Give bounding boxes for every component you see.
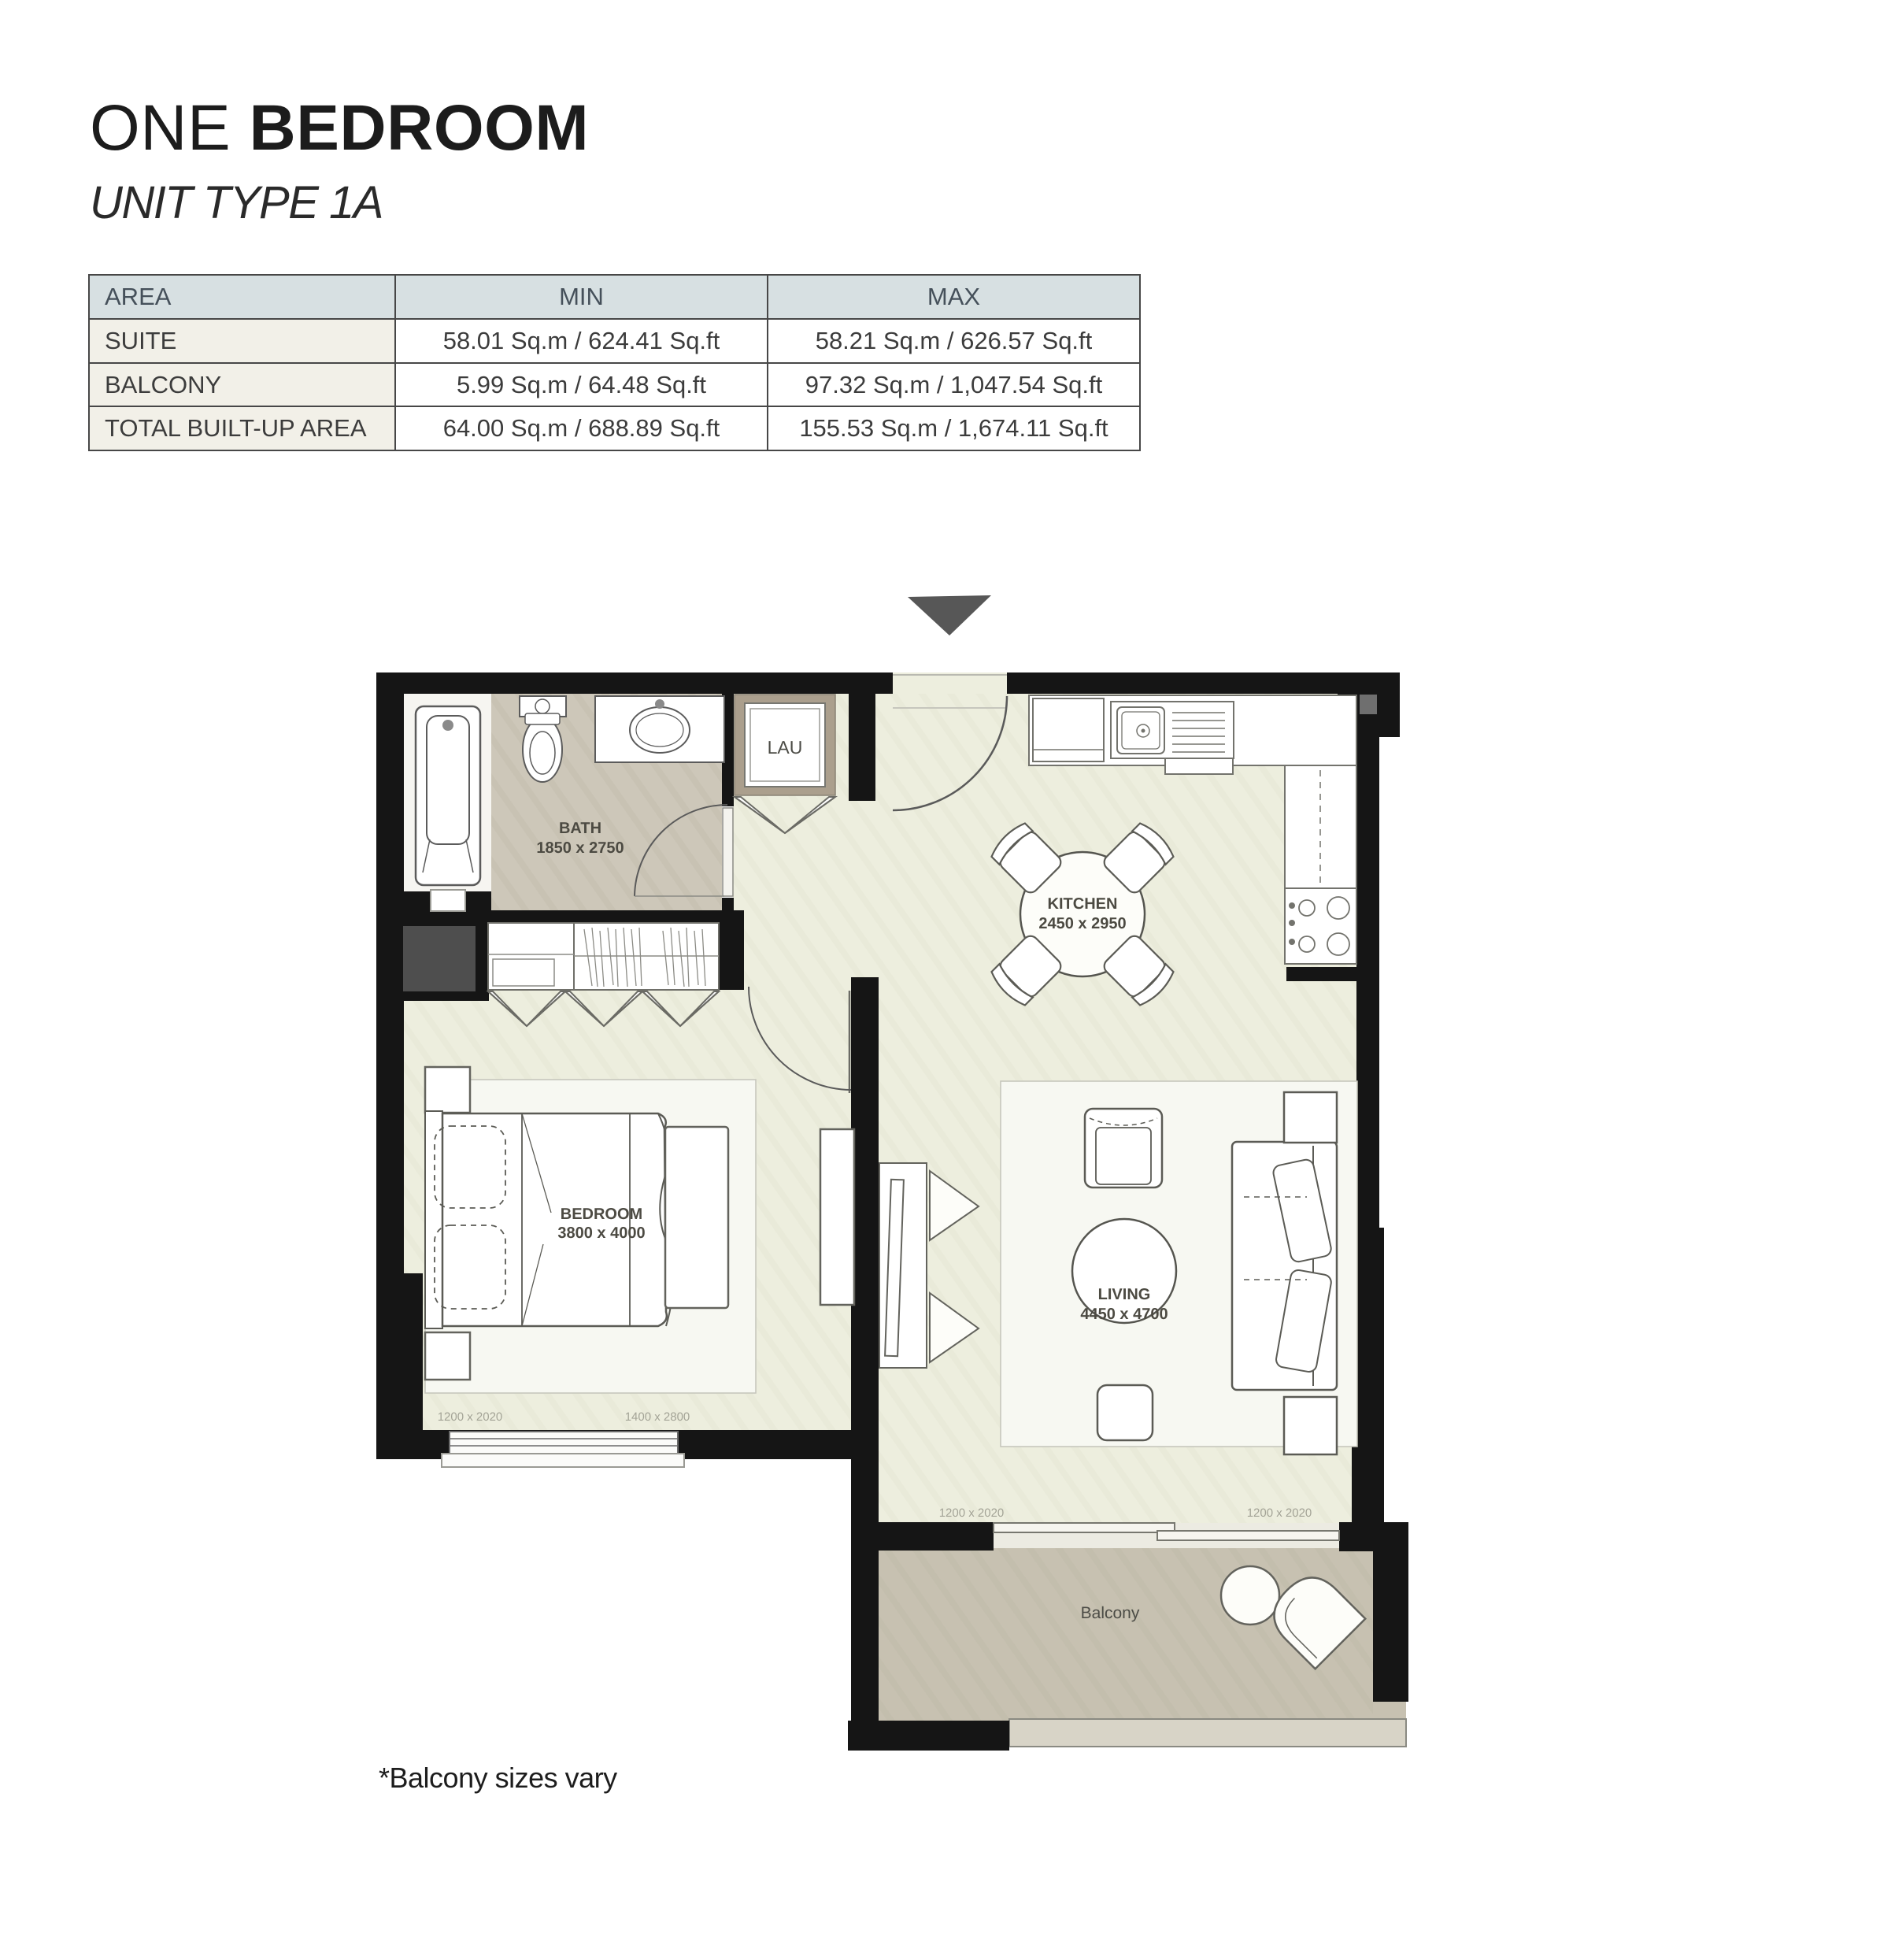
svg-text:Balcony: Balcony	[1081, 1604, 1140, 1622]
svg-text:1200 x 2020: 1200 x 2020	[1247, 1506, 1312, 1520]
svg-text:1850 x 2750: 1850 x 2750	[536, 839, 624, 857]
svg-text:KITCHEN: KITCHEN	[1048, 895, 1118, 913]
svg-text:1200 x 2020: 1200 x 2020	[939, 1506, 1005, 1520]
svg-text:LIVING: LIVING	[1098, 1286, 1151, 1303]
svg-text:BATH: BATH	[559, 820, 601, 837]
svg-text:2450 x 2950: 2450 x 2950	[1038, 915, 1126, 932]
svg-text:4450 x 4700: 4450 x 4700	[1080, 1306, 1168, 1323]
svg-text:1400 x 2800: 1400 x 2800	[625, 1410, 690, 1424]
svg-text:1200 x 2020: 1200 x 2020	[438, 1410, 503, 1424]
svg-text:LAU: LAU	[768, 737, 803, 758]
svg-text:3800 x 4000: 3800 x 4000	[557, 1225, 645, 1242]
svg-text:BEDROOM: BEDROOM	[561, 1206, 642, 1223]
